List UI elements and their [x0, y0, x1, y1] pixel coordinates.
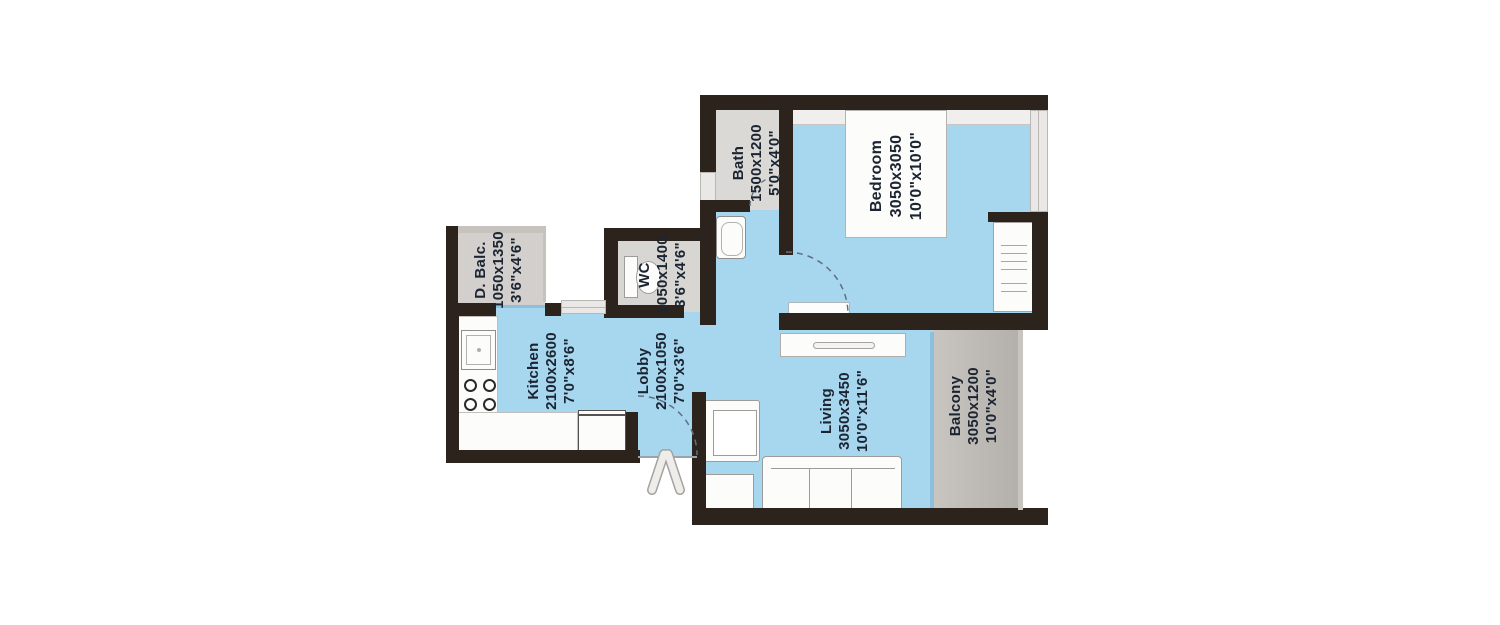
balcony-railing [1018, 330, 1023, 510]
wall-bottom [692, 508, 1048, 525]
room-name: Balcony [947, 367, 965, 445]
wardrobe [993, 222, 1033, 312]
wardrobe-drawer-line [1001, 283, 1027, 284]
room-label-dry-balcony: D. Balc. 1050x1350 3'6"x4'6" [472, 231, 526, 309]
room-label-balcony: Balcony 3050x1200 10'0"x4'0" [947, 367, 1001, 445]
sofa-back-line [771, 457, 895, 469]
room-dim-ft: 10'0"x11'6" [854, 370, 872, 452]
burner-icon [464, 379, 477, 392]
room-label-kitchen: Kitchen 2100x2600 7'0"x8'6" [525, 332, 579, 410]
wardrobe-drawer-line [1001, 261, 1027, 262]
wardrobe-drawer-line [1001, 253, 1027, 254]
kitchen-sink [461, 330, 496, 370]
window-frame-line [1038, 111, 1039, 211]
living-tv-unit [780, 333, 906, 357]
wall-kitchen-left [446, 303, 459, 463]
kitchen-counter-bottom [458, 412, 578, 452]
room-label-wc: WC 1050x1400 3'6"x4'6" [636, 236, 690, 314]
sofa-seat-divider [851, 468, 852, 511]
refrigerator [578, 410, 626, 452]
room-name: Bath [730, 124, 748, 202]
wall-top [700, 95, 1048, 110]
room-dim-ft: 3'6"x4'6" [508, 231, 526, 309]
refrigerator-door-line [579, 414, 625, 416]
room-label-living: Living 3050x3450 10'0"x11'6" [818, 370, 872, 452]
wardrobe-drawer-line [1001, 269, 1027, 270]
room-label-bedroom: Bedroom 3050x3050 10'0"x10'0" [867, 132, 927, 220]
wall-living-left [692, 392, 706, 525]
wash-basin [716, 216, 746, 259]
room-dim-ft: 10'0"x4'0" [983, 367, 1001, 445]
room-name: WC [636, 236, 654, 314]
room-name: Kitchen [525, 332, 543, 410]
room-dim-mm: 3050x3450 [836, 370, 854, 452]
tv-icon [813, 342, 875, 349]
entrance-arrow [652, 454, 680, 490]
room-label-lobby: Lobby 2100x1050 7'0"x3'6" [635, 332, 689, 410]
room-dim-mm: 1050x1400 [654, 236, 672, 314]
sofa [762, 456, 902, 514]
burner-icon [464, 398, 477, 411]
bedroom-window-right [1030, 110, 1048, 212]
window-frame-line [562, 307, 605, 308]
room-name: Lobby [635, 332, 653, 410]
floor-plan: Bath 1500x1200 5'0"x4'0" Bedroom 3050x30… [0, 0, 1500, 625]
room-dim-mm: 2100x2600 [543, 332, 561, 410]
room-dim-mm: 3050x3050 [887, 132, 907, 220]
wall-bedroom-bottom [779, 313, 1048, 330]
room-name: Living [818, 370, 836, 452]
room-name: Bedroom [867, 132, 887, 220]
burner-icon [483, 379, 496, 392]
room-name: D. Balc. [472, 231, 490, 309]
room-dim-ft: 3'6"x4'6" [672, 236, 690, 314]
room-dim-ft: 7'0"x3'6" [671, 332, 689, 410]
wall-bath-left [700, 95, 716, 172]
wash-basin-bowl [721, 222, 743, 256]
wall-entrance-stub [626, 412, 638, 456]
room-dim-mm: 1050x1350 [490, 231, 508, 309]
room-dim-mm: 2100x1050 [653, 332, 671, 410]
wall-wardrobe-top [988, 212, 1034, 222]
room-label-bath: Bath 1500x1200 5'0"x4'0" [730, 124, 784, 202]
sink-drain-dot [477, 348, 481, 352]
wardrobe-drawer-line [1001, 245, 1027, 246]
armchair-seat [713, 410, 757, 456]
balcony-glass-door [930, 332, 934, 508]
stove [458, 375, 500, 417]
room-dim-mm: 3050x1200 [965, 367, 983, 445]
armchair [702, 400, 760, 462]
sofa-seat-divider [809, 468, 810, 511]
room-dim-ft: 10'0"x10'0" [907, 132, 927, 220]
wall-kitchen-bottom [446, 450, 640, 463]
burner-icon [483, 398, 496, 411]
room-dim-mm: 1500x1200 [748, 124, 766, 202]
wall-kitchen-top-2 [545, 303, 561, 316]
wardrobe-drawer-line [1001, 291, 1027, 292]
dry-balcony-railing-right [543, 230, 546, 302]
room-dim-ft: 5'0"x4'0" [766, 124, 784, 202]
room-dim-ft: 7'0"x8'6" [561, 332, 579, 410]
kitchen-window [561, 300, 606, 314]
